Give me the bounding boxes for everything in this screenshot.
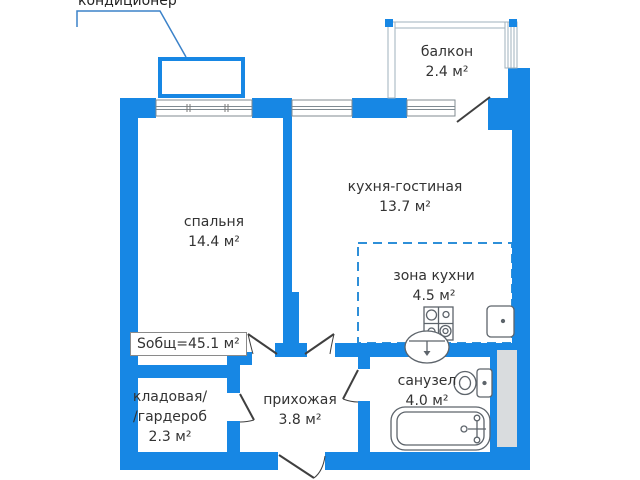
kitchen-living-label: кухня-гостиная 13.7 м²	[330, 177, 480, 217]
windows	[156, 100, 455, 116]
kitchen-sink-icon	[487, 306, 514, 337]
bedroom-window	[156, 100, 252, 116]
wall-hall-west-a	[227, 365, 240, 393]
kitchen-zone-label: зона кухни 4.5 м²	[374, 266, 494, 306]
wall-balcony-door-pillar	[488, 118, 512, 130]
balcony-corner-post-right	[509, 19, 517, 27]
air-conditioner-label: кондиционер	[78, 0, 177, 9]
floor-plan: кондиционер балкон 2.4 м² спальня 14.4 м…	[0, 0, 640, 480]
ventilation-shaft	[497, 350, 517, 447]
kitchen-door-leaf	[305, 334, 334, 354]
room-name: зона кухни	[374, 266, 494, 286]
wall-divider-wide	[283, 292, 299, 343]
wall-bottom-a	[120, 452, 278, 470]
room-name-line2: /гардероб	[115, 407, 225, 427]
room-name-line1: кладовая/	[115, 387, 225, 407]
room-name: прихожая	[245, 390, 355, 410]
wall-bedroom-kitchen-divider	[283, 118, 292, 292]
room-area: 4.5 м²	[374, 286, 494, 306]
room-area: 13.7 м²	[330, 197, 480, 217]
wall-balcony-junction	[508, 68, 530, 98]
wall-hall-west-b	[227, 421, 240, 452]
wall-bathroom-west-a	[358, 357, 370, 369]
entrance-door-leaf	[279, 455, 314, 478]
bathroom-label: санузел 4.0 м²	[377, 371, 477, 411]
room-area: 14.4 м²	[144, 232, 284, 252]
wall-storage-top	[138, 365, 240, 378]
room-name: кухня-гостиная	[330, 177, 480, 197]
wall-top-b	[252, 98, 292, 118]
storage-label: кладовая/ /гардероб 2.3 м²	[115, 387, 225, 447]
wall-top-d	[488, 98, 530, 118]
balcony-label: балкон 2.4 м²	[397, 42, 497, 82]
room-area: 2.4 м²	[397, 62, 497, 82]
wall-top-a	[120, 98, 156, 118]
air-conditioner-unit	[160, 59, 243, 96]
room-area: 2.3 м²	[115, 427, 225, 447]
wall-top-c	[352, 98, 407, 118]
balcony-block-window	[407, 100, 455, 116]
washbasin-icon	[405, 331, 449, 363]
callout-leader-line	[77, 11, 186, 57]
balcony-corner-post-left	[385, 19, 393, 27]
wall-bottom-b	[325, 452, 530, 470]
hallway-label: прихожая 3.8 м²	[245, 390, 355, 430]
balcony-door-leaf	[457, 97, 490, 122]
wall-divider-foot	[275, 343, 307, 357]
room-area: 4.0 м²	[377, 391, 477, 411]
wall-bathroom-west-b	[358, 401, 370, 452]
room-name: спальня	[144, 212, 284, 232]
room-name: санузел	[377, 371, 477, 391]
kitchen-window	[292, 100, 352, 116]
balcony-front-rail	[388, 22, 512, 28]
room-area: 3.8 м²	[245, 410, 355, 430]
bathtub-icon	[391, 407, 490, 450]
total-area-badge: Sобщ=45.1 м²	[130, 332, 247, 356]
balcony-left-rail	[388, 22, 395, 98]
bedroom-label: спальня 14.4 м²	[144, 212, 284, 252]
room-name: балкон	[397, 42, 497, 62]
